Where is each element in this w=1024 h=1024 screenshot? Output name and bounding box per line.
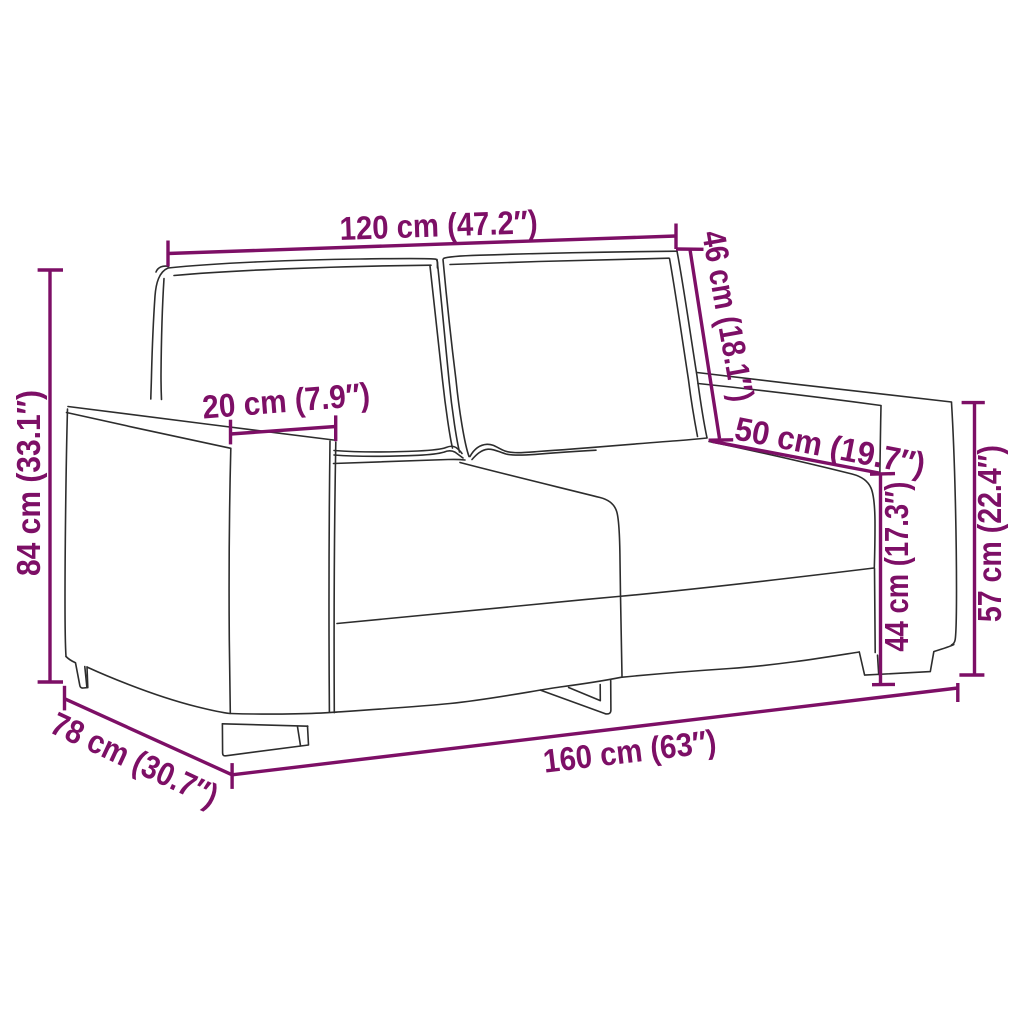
svg-text:44 cm (17.3″): 44 cm (17.3″): [878, 482, 915, 652]
svg-text:20 cm (7.9″): 20 cm (7.9″): [201, 376, 371, 426]
svg-text:46 cm (18.1″): 46 cm (18.1″): [695, 228, 761, 405]
svg-text:57 cm (22.4″): 57 cm (22.4″): [971, 445, 1008, 622]
svg-text:50 cm (19.7″): 50 cm (19.7″): [732, 410, 929, 483]
svg-text:120 cm (47.2″): 120 cm (47.2″): [339, 203, 538, 247]
svg-text:84 cm (33.1″): 84 cm (33.1″): [10, 390, 47, 576]
svg-text:160 cm (63″): 160 cm (63″): [541, 722, 718, 779]
